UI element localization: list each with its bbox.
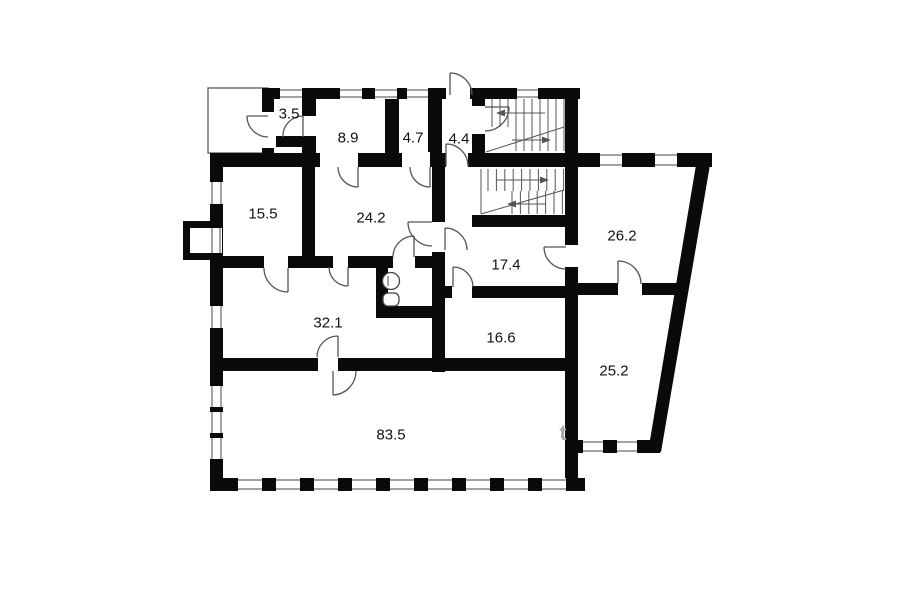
toilet-tank (383, 293, 399, 306)
window (340, 88, 362, 99)
slanted-east-wall (648, 153, 712, 452)
window (655, 153, 677, 167)
window (407, 88, 428, 99)
window (276, 478, 300, 491)
lower-stair-winder-line (481, 190, 564, 214)
window (238, 478, 262, 491)
room-16-6-door (453, 267, 473, 287)
floor-plan-page: 3.58.94.74.415.524.226.217.432.116.625.2… (0, 0, 900, 604)
room-17-4-to-26-2-door (544, 247, 566, 269)
window (210, 412, 223, 433)
porch-outline (208, 88, 268, 153)
window (210, 386, 223, 407)
window (428, 478, 452, 491)
window (466, 478, 490, 491)
room-label-24-2: 24.2 (356, 210, 385, 227)
hall-to-83-5-door-lower (333, 371, 356, 395)
window (210, 306, 223, 328)
room-15-5-door (264, 268, 288, 292)
window (280, 88, 302, 99)
stair-landing-door (485, 107, 509, 131)
room-label-17-4: 17.4 (491, 257, 520, 274)
room-label-25-2: 25.2 (599, 363, 628, 380)
room-label-32-1: 32.1 (313, 315, 342, 332)
window (504, 478, 528, 491)
room-label-15-5: 15.5 (248, 206, 277, 223)
room-label-8-9: 8.9 (338, 130, 359, 147)
room-label-26-2: 26.2 (607, 228, 636, 245)
window (542, 478, 566, 491)
hall-to-83-5-door-upper (317, 336, 338, 357)
room-label-4-7: 4.7 (403, 130, 424, 147)
window (210, 438, 223, 459)
room-label-3-5: 3.5 (279, 106, 300, 123)
room-4-7-to-24-2-door (410, 167, 430, 187)
wc-door (393, 236, 414, 257)
room-24-2-to-hall-door (329, 267, 348, 286)
window (375, 88, 397, 99)
window (390, 478, 414, 491)
watermark-text: t (560, 422, 567, 445)
window (617, 440, 637, 453)
window (210, 182, 223, 204)
window (583, 440, 603, 453)
window (352, 478, 376, 491)
window (600, 153, 622, 167)
room-label-16-6: 16.6 (486, 330, 515, 347)
room-8-9-to-24-2-door (338, 167, 358, 187)
room-label-83-5: 83.5 (376, 427, 405, 444)
toilet-bowl (383, 273, 400, 290)
window (314, 478, 338, 491)
floor-plan-drawing: 3.58.94.74.415.524.226.217.432.116.625.2… (0, 0, 900, 604)
room-24-2-to-17-4-door-right (445, 228, 467, 250)
room-26-2-to-25-2-door (618, 261, 641, 284)
room-24-2-to-17-4-door-left (408, 222, 432, 246)
room-label-4-4: 4.4 (449, 131, 470, 148)
window (517, 88, 538, 99)
